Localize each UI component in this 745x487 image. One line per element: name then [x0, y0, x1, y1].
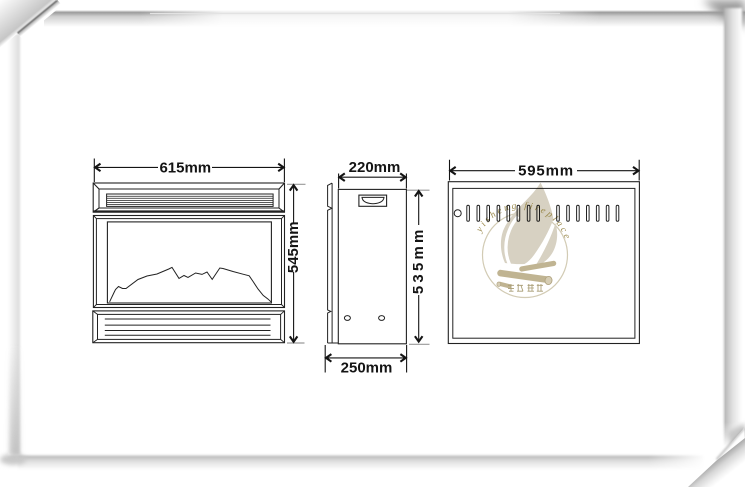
svg-text:535mm: 535mm — [410, 226, 427, 294]
svg-text:250mm: 250mm — [341, 359, 393, 376]
svg-text:595mm: 595mm — [518, 163, 574, 180]
svg-text:545mm: 545mm — [285, 221, 302, 273]
svg-text:615mm: 615mm — [159, 159, 211, 176]
svg-text:220mm: 220mm — [349, 159, 401, 176]
